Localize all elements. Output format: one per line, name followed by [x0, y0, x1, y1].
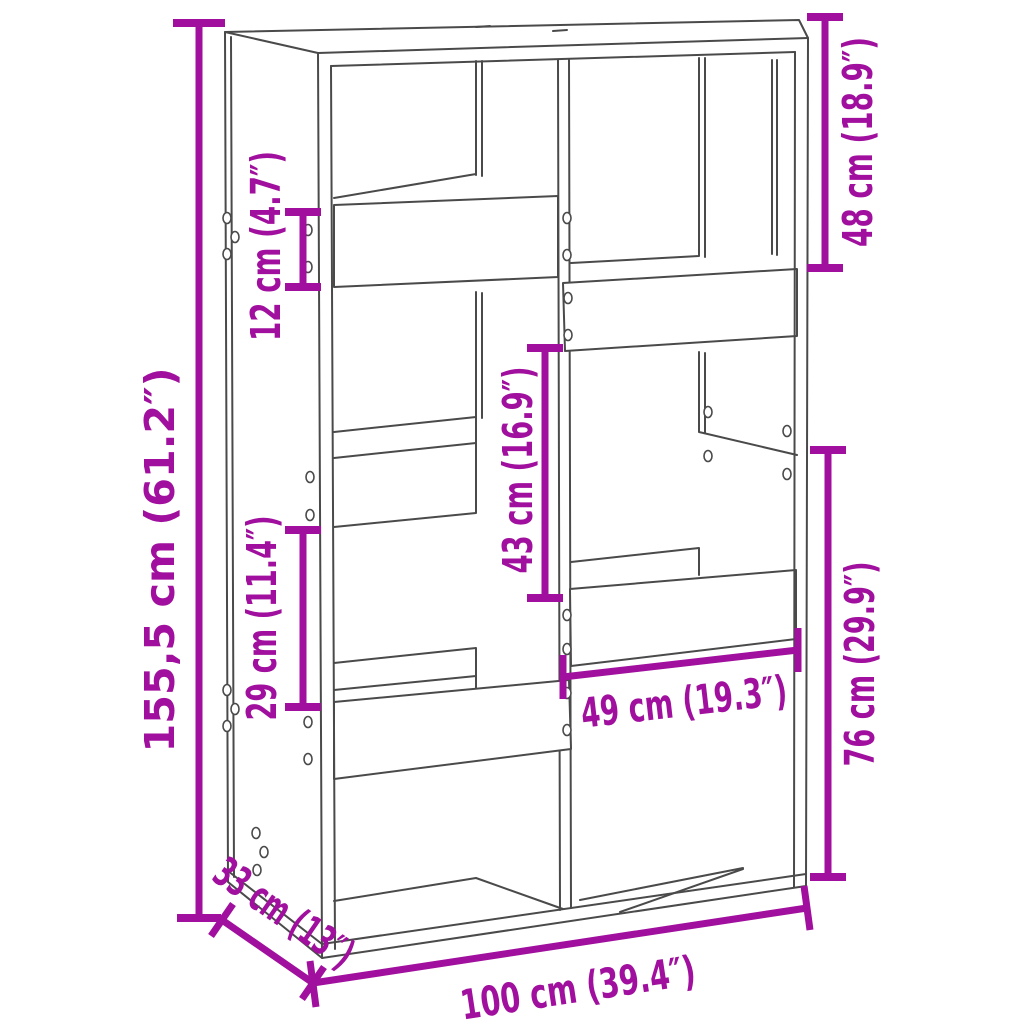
- dimension-bottom-right-section: 76 cm (29.9″): [810, 450, 884, 877]
- shelf-board-upper-left: [334, 196, 558, 287]
- diagram-canvas: 155,5 cm (61.2″) 12 cm (4.7″) 29 cm (11.…: [0, 0, 1024, 1024]
- dimension-top-right-compartment: 48 cm (18.9″): [807, 17, 882, 268]
- lower-left-compartment-label: 29 cm (11.4″): [238, 516, 286, 721]
- total-height-label: 155,5 cm (61.2″): [136, 368, 184, 753]
- dimension-diagram: 155,5 cm (61.2″) 12 cm (4.7″) 29 cm (11.…: [0, 0, 1024, 1024]
- top-right-compartment-label: 48 cm (18.9″): [834, 37, 882, 247]
- shelf-board-height-label: 12 cm (4.7″): [242, 151, 290, 341]
- dimension-total-height: 155,5 cm (61.2″): [136, 23, 225, 918]
- shelf-board-upper-right: [563, 269, 797, 351]
- bottom-right-section-label: 76 cm (29.9″): [836, 562, 884, 767]
- middle-compartment-label: 43 cm (16.9″): [494, 367, 542, 574]
